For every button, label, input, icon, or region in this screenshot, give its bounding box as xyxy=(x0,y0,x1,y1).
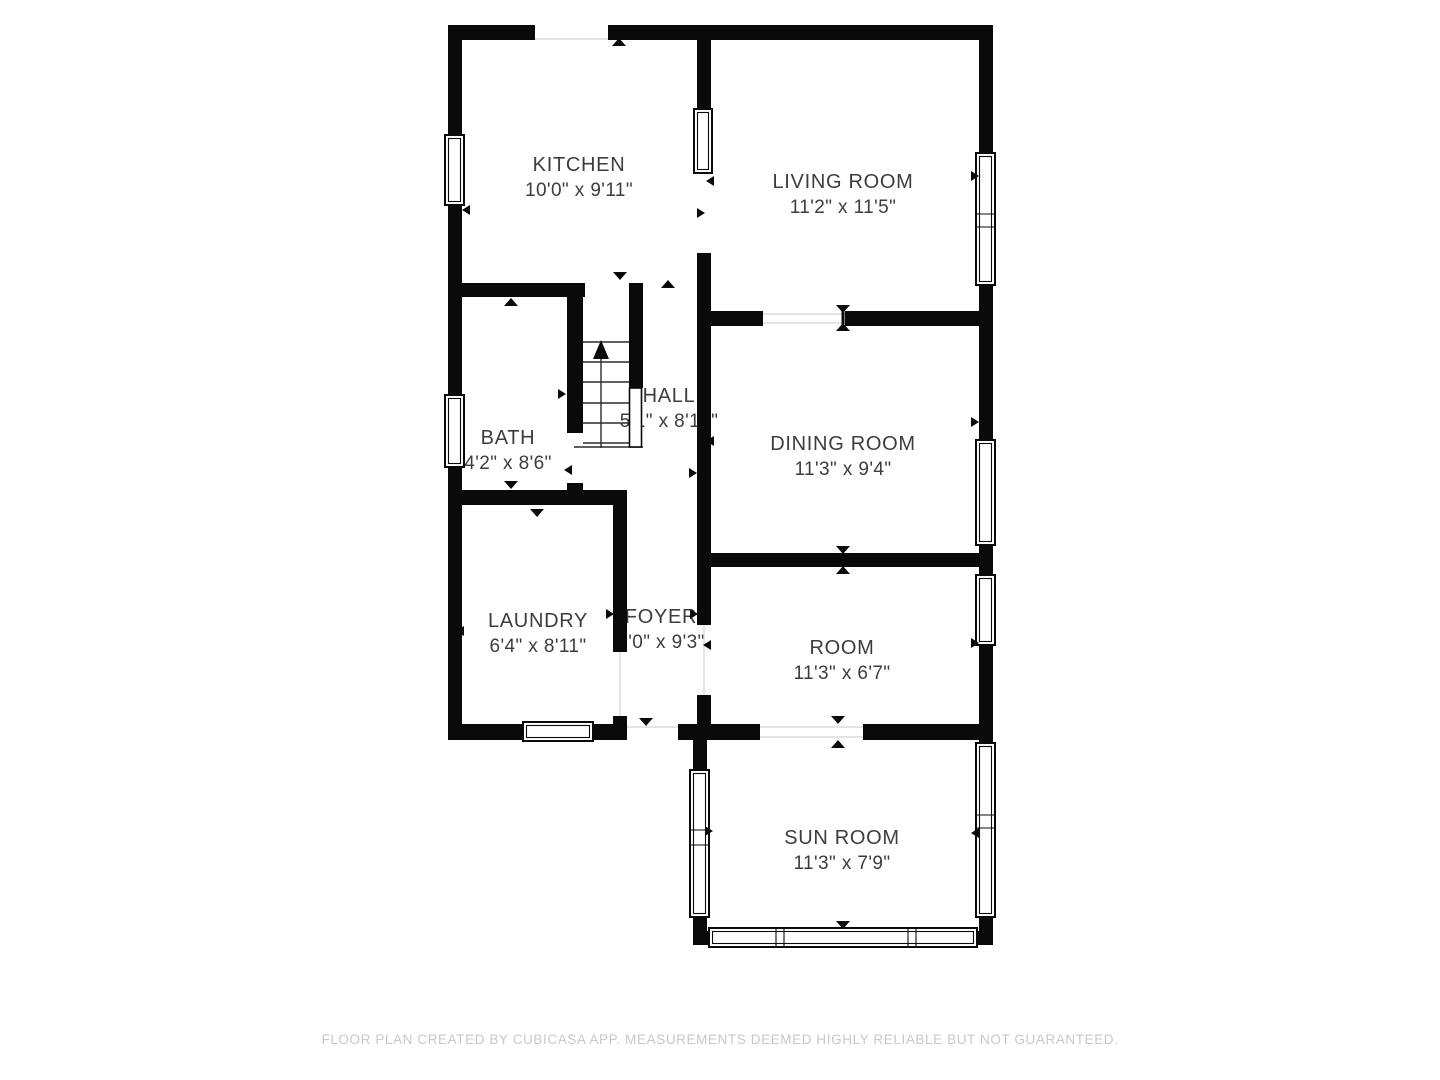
room-label-laundry: LAUNDRY 6'4" x 8'11" xyxy=(488,608,588,660)
room-name-sun-room: SUN ROOM xyxy=(784,825,900,851)
room-dimensions-foyer: 3'0" x 9'3" xyxy=(617,630,704,656)
room-label-kitchen: KITCHEN 10'0" x 9'11" xyxy=(525,152,633,204)
room-name-hall: HALL xyxy=(620,383,718,409)
room-name-room: ROOM xyxy=(793,635,890,661)
room-label-hall: HALL 5'1" x 8'10" xyxy=(620,383,718,435)
room-label-bath: BATH 4'2" x 8'6" xyxy=(464,425,551,477)
room-labels-layer: KITCHEN 10'0" x 9'11" LIVING ROOM 11'2" … xyxy=(0,0,1440,1080)
room-name-living-room: LIVING ROOM xyxy=(772,169,913,195)
room-dimensions-sun-room: 11'3" x 7'9" xyxy=(784,851,900,877)
room-label-sun-room: SUN ROOM 11'3" x 7'9" xyxy=(784,825,900,877)
room-dimensions-kitchen: 10'0" x 9'11" xyxy=(525,178,633,204)
room-dimensions-laundry: 6'4" x 8'11" xyxy=(488,634,588,660)
room-dimensions-bath: 4'2" x 8'6" xyxy=(464,451,551,477)
room-label-living-room: LIVING ROOM 11'2" x 11'5" xyxy=(772,169,913,221)
room-name-laundry: LAUNDRY xyxy=(488,608,588,634)
room-name-foyer: FOYER xyxy=(617,604,704,630)
room-label-room: ROOM 11'3" x 6'7" xyxy=(793,635,890,687)
room-dimensions-room: 11'3" x 6'7" xyxy=(793,661,890,687)
room-label-dining-room: DINING ROOM 11'3" x 9'4" xyxy=(770,431,915,483)
floor-plan: KITCHEN 10'0" x 9'11" LIVING ROOM 11'2" … xyxy=(0,0,1440,1080)
room-label-foyer: FOYER 3'0" x 9'3" xyxy=(617,604,704,656)
room-dimensions-dining-room: 11'3" x 9'4" xyxy=(770,457,915,483)
room-name-dining-room: DINING ROOM xyxy=(770,431,915,457)
room-dimensions-living-room: 11'2" x 11'5" xyxy=(772,195,913,221)
room-name-kitchen: KITCHEN xyxy=(525,152,633,178)
room-dimensions-hall: 5'1" x 8'10" xyxy=(620,409,718,435)
footer-disclaimer: FLOOR PLAN CREATED BY CUBICASA APP. MEAS… xyxy=(0,1032,1440,1047)
room-name-bath: BATH xyxy=(464,425,551,451)
